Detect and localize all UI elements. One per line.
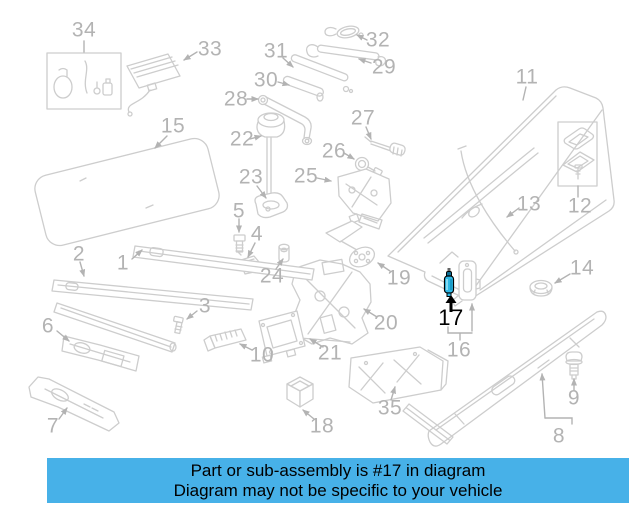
part-label-32: 32 bbox=[366, 30, 390, 51]
part-9-plug bbox=[566, 352, 582, 379]
banner-line1: Part or sub-assembly is #17 in diagram bbox=[47, 461, 629, 481]
part-18-box bbox=[287, 377, 313, 407]
part-label-18: 18 bbox=[310, 416, 334, 437]
part-10-plate bbox=[204, 329, 246, 351]
part-30-rod bbox=[282, 75, 324, 101]
part-label-13: 13 bbox=[517, 194, 541, 215]
part-label-30: 30 bbox=[254, 70, 278, 91]
part-14-grommet bbox=[530, 281, 552, 297]
part-label-25: 25 bbox=[294, 166, 318, 187]
part-label-2: 2 bbox=[73, 244, 85, 265]
banner-line2: Diagram may not be specific to your vehi… bbox=[47, 481, 629, 501]
part-label-20: 20 bbox=[374, 313, 398, 334]
part-label-28: 28 bbox=[224, 89, 248, 110]
part-label-4: 4 bbox=[251, 224, 263, 245]
part-label-14: 14 bbox=[570, 258, 594, 279]
diagram-banner: Part or sub-assembly is #17 in diagram D… bbox=[47, 458, 629, 503]
part-27-screwdriver bbox=[365, 137, 406, 156]
part-6-support bbox=[62, 336, 139, 371]
part-label-27: 27 bbox=[351, 108, 375, 129]
part-label-9: 9 bbox=[568, 388, 580, 409]
part-5-bolt bbox=[234, 235, 245, 255]
part-label-12: 12 bbox=[568, 196, 592, 217]
part-label-24: 24 bbox=[260, 266, 284, 287]
part-33-module bbox=[127, 54, 180, 116]
part-label-1: 1 bbox=[117, 253, 129, 274]
part-label-26: 26 bbox=[322, 141, 346, 162]
part-label-34: 34 bbox=[72, 20, 96, 41]
part-label-11: 11 bbox=[516, 67, 539, 88]
part-label-29: 29 bbox=[372, 57, 396, 78]
part-23-cap bbox=[255, 193, 288, 218]
part-8-rear-sill bbox=[428, 311, 606, 446]
part-label-21: 21 bbox=[318, 343, 342, 364]
part-label-15: 15 bbox=[161, 116, 185, 137]
part-3-bolt bbox=[173, 316, 183, 333]
part-label-3: 3 bbox=[199, 296, 211, 317]
part-24-cylinder bbox=[279, 244, 289, 262]
part-32-hook-tool bbox=[325, 24, 363, 39]
part-label-33: 33 bbox=[198, 39, 222, 60]
part-label-35: 35 bbox=[378, 398, 402, 419]
part-label-31: 31 bbox=[264, 41, 288, 62]
part-7-support bbox=[29, 377, 119, 431]
part-label-16: 16 bbox=[447, 340, 471, 361]
parts-diagram-image: 3433313229302827111522262523131254211424… bbox=[0, 0, 640, 512]
part-15-trunk-mat bbox=[32, 136, 222, 249]
part-label-5: 5 bbox=[233, 201, 245, 222]
part-label-19: 19 bbox=[387, 268, 411, 289]
part-label-17: 17 bbox=[438, 307, 463, 329]
part-25-bracket bbox=[338, 169, 391, 229]
part-label-22: 22 bbox=[230, 129, 254, 150]
part-2-sill-plate bbox=[52, 280, 253, 310]
part-label-6: 6 bbox=[42, 316, 54, 337]
part-label-10: 10 bbox=[250, 345, 274, 366]
part-label-7: 7 bbox=[47, 416, 59, 437]
part-34-kit-box bbox=[47, 53, 121, 109]
part-label-23: 23 bbox=[239, 167, 263, 188]
part-35-x-brace bbox=[349, 347, 448, 403]
part-label-8: 8 bbox=[553, 426, 565, 447]
